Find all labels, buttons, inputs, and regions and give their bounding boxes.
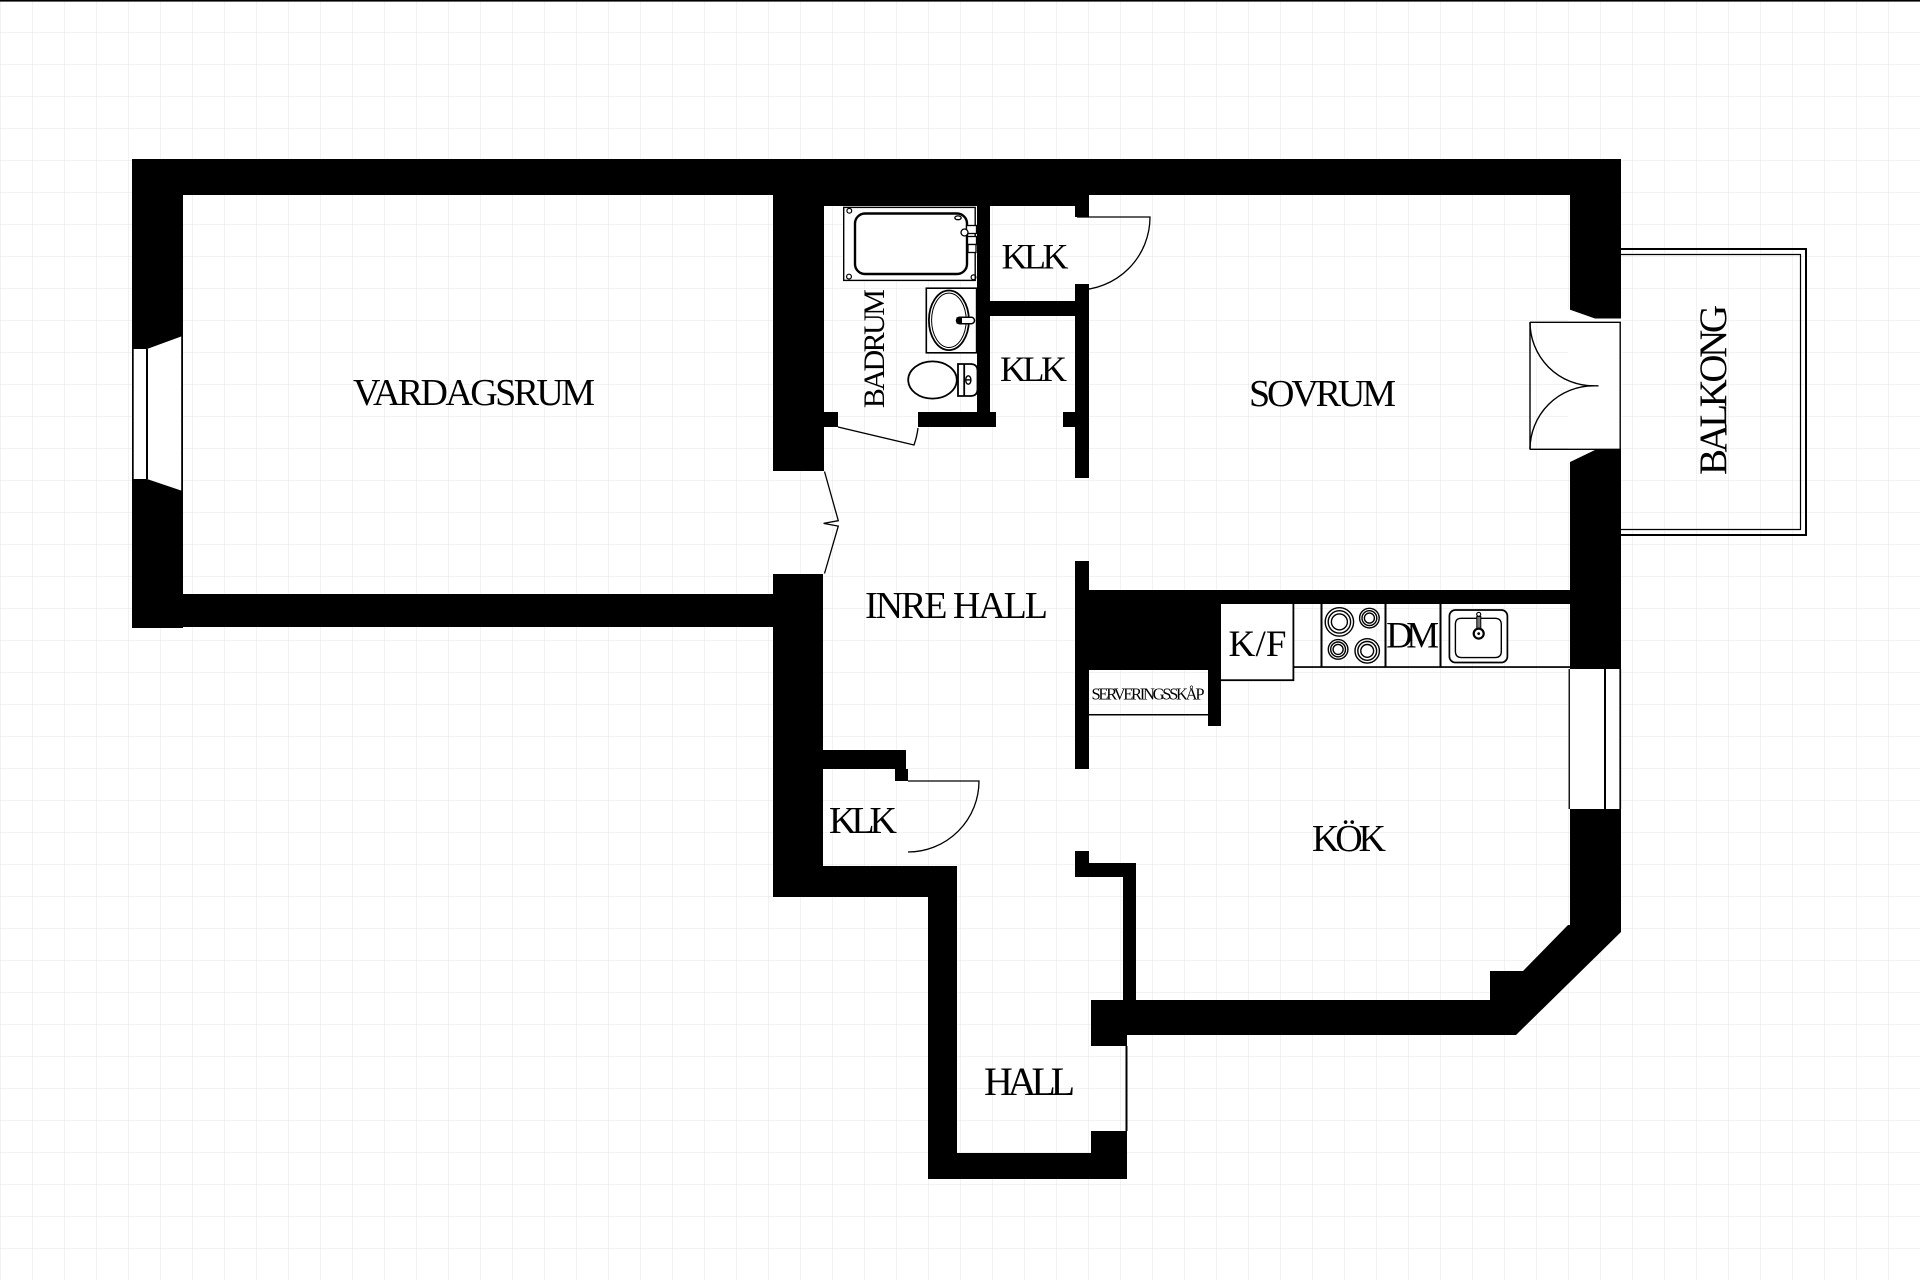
svg-text:DM: DM [1386,616,1439,657]
svg-text:K/F: K/F [1229,624,1287,665]
svg-text:KLK: KLK [1002,237,1069,277]
svg-text:BADRUM: BADRUM [858,289,891,408]
svg-text:BALKONG: BALKONG [1692,305,1735,475]
svg-text:KÖK: KÖK [1312,818,1387,860]
svg-text:KLK: KLK [1000,349,1067,389]
svg-text:HALL: HALL [984,1059,1075,1104]
svg-text:SERVERINGSSKÅP: SERVERINGSSKÅP [1092,685,1205,704]
svg-text:VARDAGSRUM: VARDAGSRUM [353,372,595,414]
svg-text:KLK: KLK [829,800,898,842]
svg-text:INRE HALL: INRE HALL [865,585,1048,627]
svg-text:SOVRUM: SOVRUM [1249,373,1396,415]
